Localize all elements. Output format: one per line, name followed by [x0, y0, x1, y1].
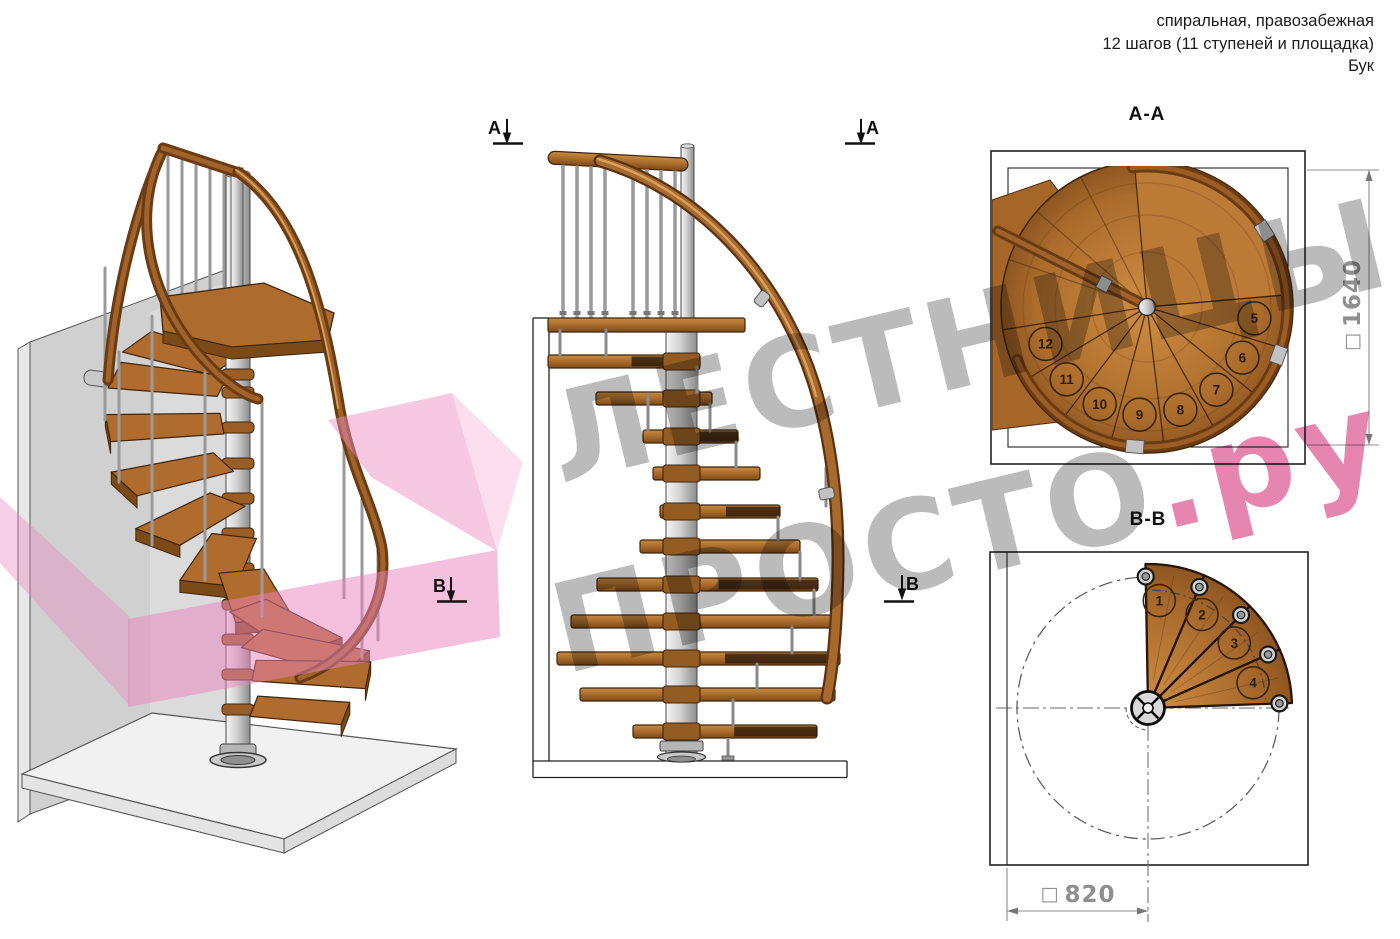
- step-shadow: [726, 507, 780, 517]
- header-material: Бук: [1102, 55, 1374, 78]
- step-hub: [222, 422, 254, 433]
- perspective-view: [0, 148, 523, 853]
- step-hub-elev: [663, 390, 700, 407]
- header-steps: 12 шагов (11 ступеней и площадка): [1102, 33, 1374, 56]
- step-hub: [222, 704, 254, 715]
- aa-rim-connector-3: [1125, 439, 1144, 454]
- platform-slab-elev: [548, 318, 745, 332]
- bolt-center: [1142, 573, 1150, 581]
- marker-b-right-label: В: [906, 574, 919, 594]
- baluster-foot: [574, 311, 581, 315]
- step-hub-elev: [663, 353, 700, 370]
- baluster-foot: [602, 311, 609, 315]
- bolt-center: [1237, 611, 1245, 619]
- top-post-cap: [681, 144, 694, 148]
- step-number: 8: [1177, 403, 1185, 418]
- dimension-820-value: 820: [1064, 882, 1115, 908]
- step-number: 9: [1136, 408, 1144, 423]
- step-hub-elev: [663, 428, 700, 445]
- step-hub-elev: [663, 576, 700, 593]
- square-symbol-icon: □: [1041, 883, 1060, 905]
- step-3d: [250, 696, 350, 725]
- baluster-foot: [644, 311, 651, 315]
- bolt-center: [1196, 583, 1204, 591]
- step-number: 2: [1198, 607, 1206, 622]
- baluster-foot: [588, 311, 595, 315]
- pole-base-collar-elev: [660, 741, 703, 751]
- step-hub-elev: [663, 650, 700, 667]
- dimension-1640-value: 1640: [1340, 259, 1366, 327]
- baluster-foot: [630, 311, 637, 315]
- dimension-1640: □1640: [1340, 239, 1366, 371]
- step-hub-elev: [663, 465, 700, 482]
- section-title-bb: В-В: [1103, 509, 1193, 531]
- pole-base-ring: [221, 756, 255, 765]
- baluster-foot: [560, 311, 567, 315]
- step-shadow: [725, 654, 838, 664]
- step-number: 1: [1156, 593, 1164, 608]
- header-type: спиральная, правозабежная: [1102, 10, 1374, 33]
- pole-base-ring-elev: [668, 756, 696, 762]
- support-foot-plate: [722, 756, 734, 760]
- marker-a-right-label: А: [866, 118, 879, 138]
- bolt-center: [1264, 651, 1272, 659]
- section-title-aa: А-А: [1102, 104, 1192, 126]
- square-symbol-icon: □: [1341, 332, 1363, 351]
- platform-rail-core: [163, 148, 236, 172]
- bolt-center: [1276, 700, 1284, 708]
- drawing-sheet: А А В В 56789101112: [0, 0, 1400, 939]
- bb-step-fan: [1146, 564, 1292, 708]
- step-hub-elev: [663, 723, 700, 740]
- plan-view-bb: 1234: [990, 552, 1308, 922]
- step-hub-elev: [663, 503, 700, 520]
- sheet-header: спиральная, правозабежная 12 шагов (11 с…: [1102, 10, 1374, 78]
- aa-pole-ball: [1139, 299, 1156, 316]
- step-number: 6: [1239, 351, 1247, 366]
- step-number: 5: [1251, 311, 1259, 326]
- technical-drawing: А А В В 56789101112: [0, 0, 1400, 939]
- step-number: 12: [1038, 337, 1053, 352]
- marker-a-left-label: А: [488, 118, 501, 138]
- step-number: 7: [1213, 383, 1221, 398]
- step-elevation: [580, 688, 835, 701]
- marker-b-left-label: В: [433, 576, 446, 596]
- top-post-elev: [681, 146, 694, 330]
- step-number: 3: [1231, 636, 1239, 651]
- baluster-foot: [658, 311, 665, 315]
- step-shadow: [719, 580, 818, 590]
- dimension-820: □820: [1014, 882, 1142, 908]
- baluster-foot: [672, 311, 679, 315]
- rail-connector-2: [818, 487, 835, 501]
- step-hub-elev: [663, 686, 700, 703]
- step-shadow: [695, 432, 738, 442]
- step-number: 4: [1249, 676, 1257, 691]
- step-number: 11: [1060, 372, 1075, 387]
- plan-view-aa: 56789101112: [991, 151, 1379, 464]
- step-number: 10: [1092, 397, 1107, 412]
- step-hub-elev: [663, 538, 700, 555]
- step-shadow: [734, 727, 817, 737]
- step-hub-elev: [663, 613, 700, 630]
- bb-pole-hub: [1143, 703, 1153, 713]
